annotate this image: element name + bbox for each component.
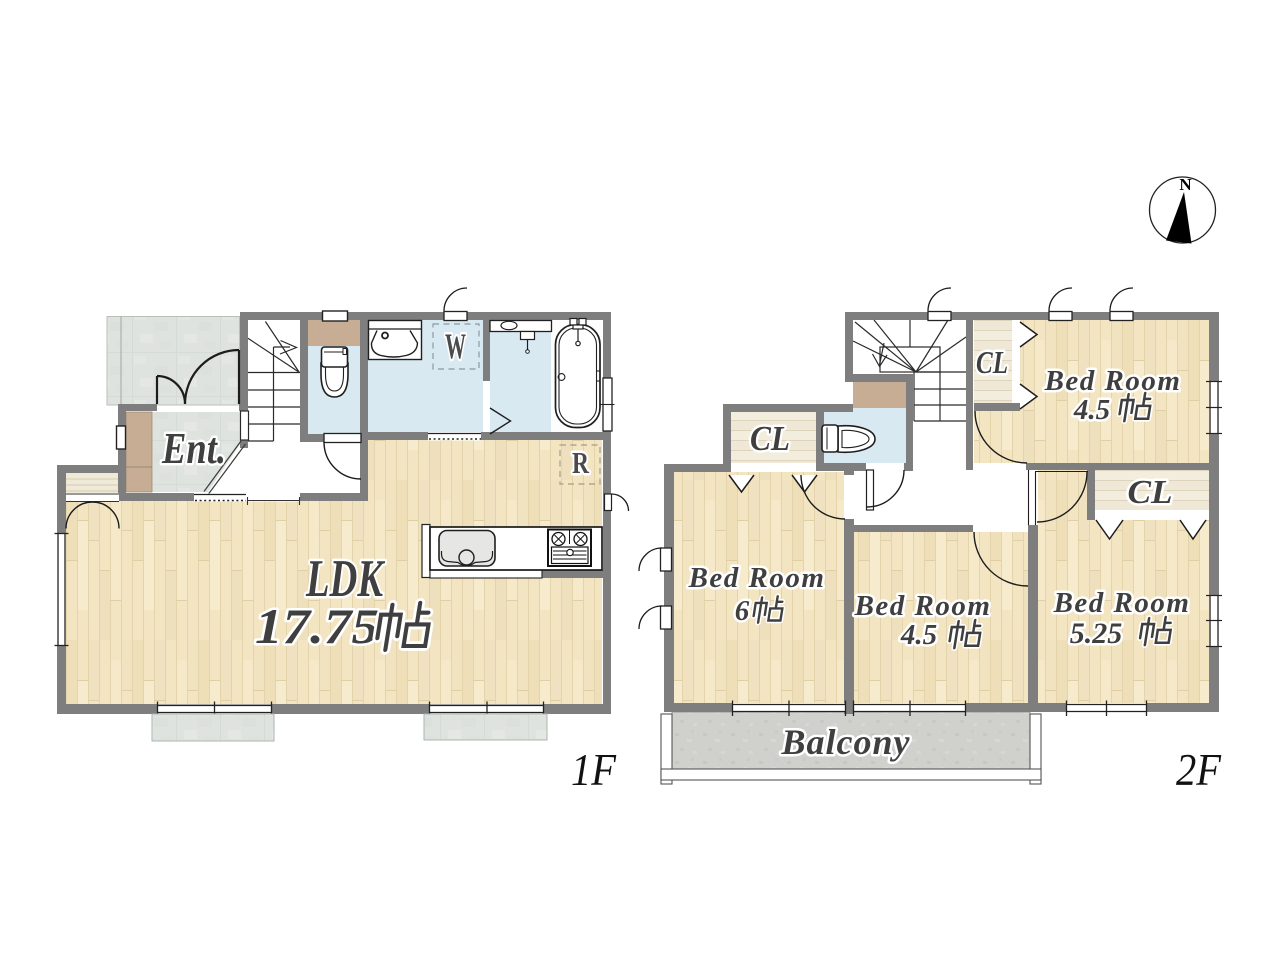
svg-text:1F: 1F	[571, 745, 616, 795]
svg-text:2F: 2F	[1176, 745, 1221, 795]
svg-text:17.75: 17.75	[255, 598, 379, 654]
svg-text:4.5: 4.5	[1073, 394, 1110, 426]
svg-text:6: 6	[735, 595, 750, 627]
svg-text:Bed Room: Bed Room	[854, 590, 992, 622]
svg-text:Ent.: Ent.	[161, 424, 226, 473]
svg-text:N: N	[1179, 175, 1192, 194]
svg-text:CL: CL	[1128, 474, 1173, 511]
svg-text:CL: CL	[750, 419, 790, 458]
svg-text:Balcony: Balcony	[781, 722, 911, 762]
svg-text:W: W	[445, 326, 466, 366]
svg-text:CL: CL	[976, 344, 1008, 380]
svg-text:Bed Room: Bed Room	[1053, 587, 1191, 619]
svg-text:4.5: 4.5	[900, 619, 937, 651]
svg-text:Bed Room: Bed Room	[1044, 365, 1182, 397]
svg-text:5.25: 5.25	[1070, 617, 1123, 650]
svg-text:Bed Room: Bed Room	[688, 562, 826, 594]
svg-text:R: R	[572, 445, 589, 480]
